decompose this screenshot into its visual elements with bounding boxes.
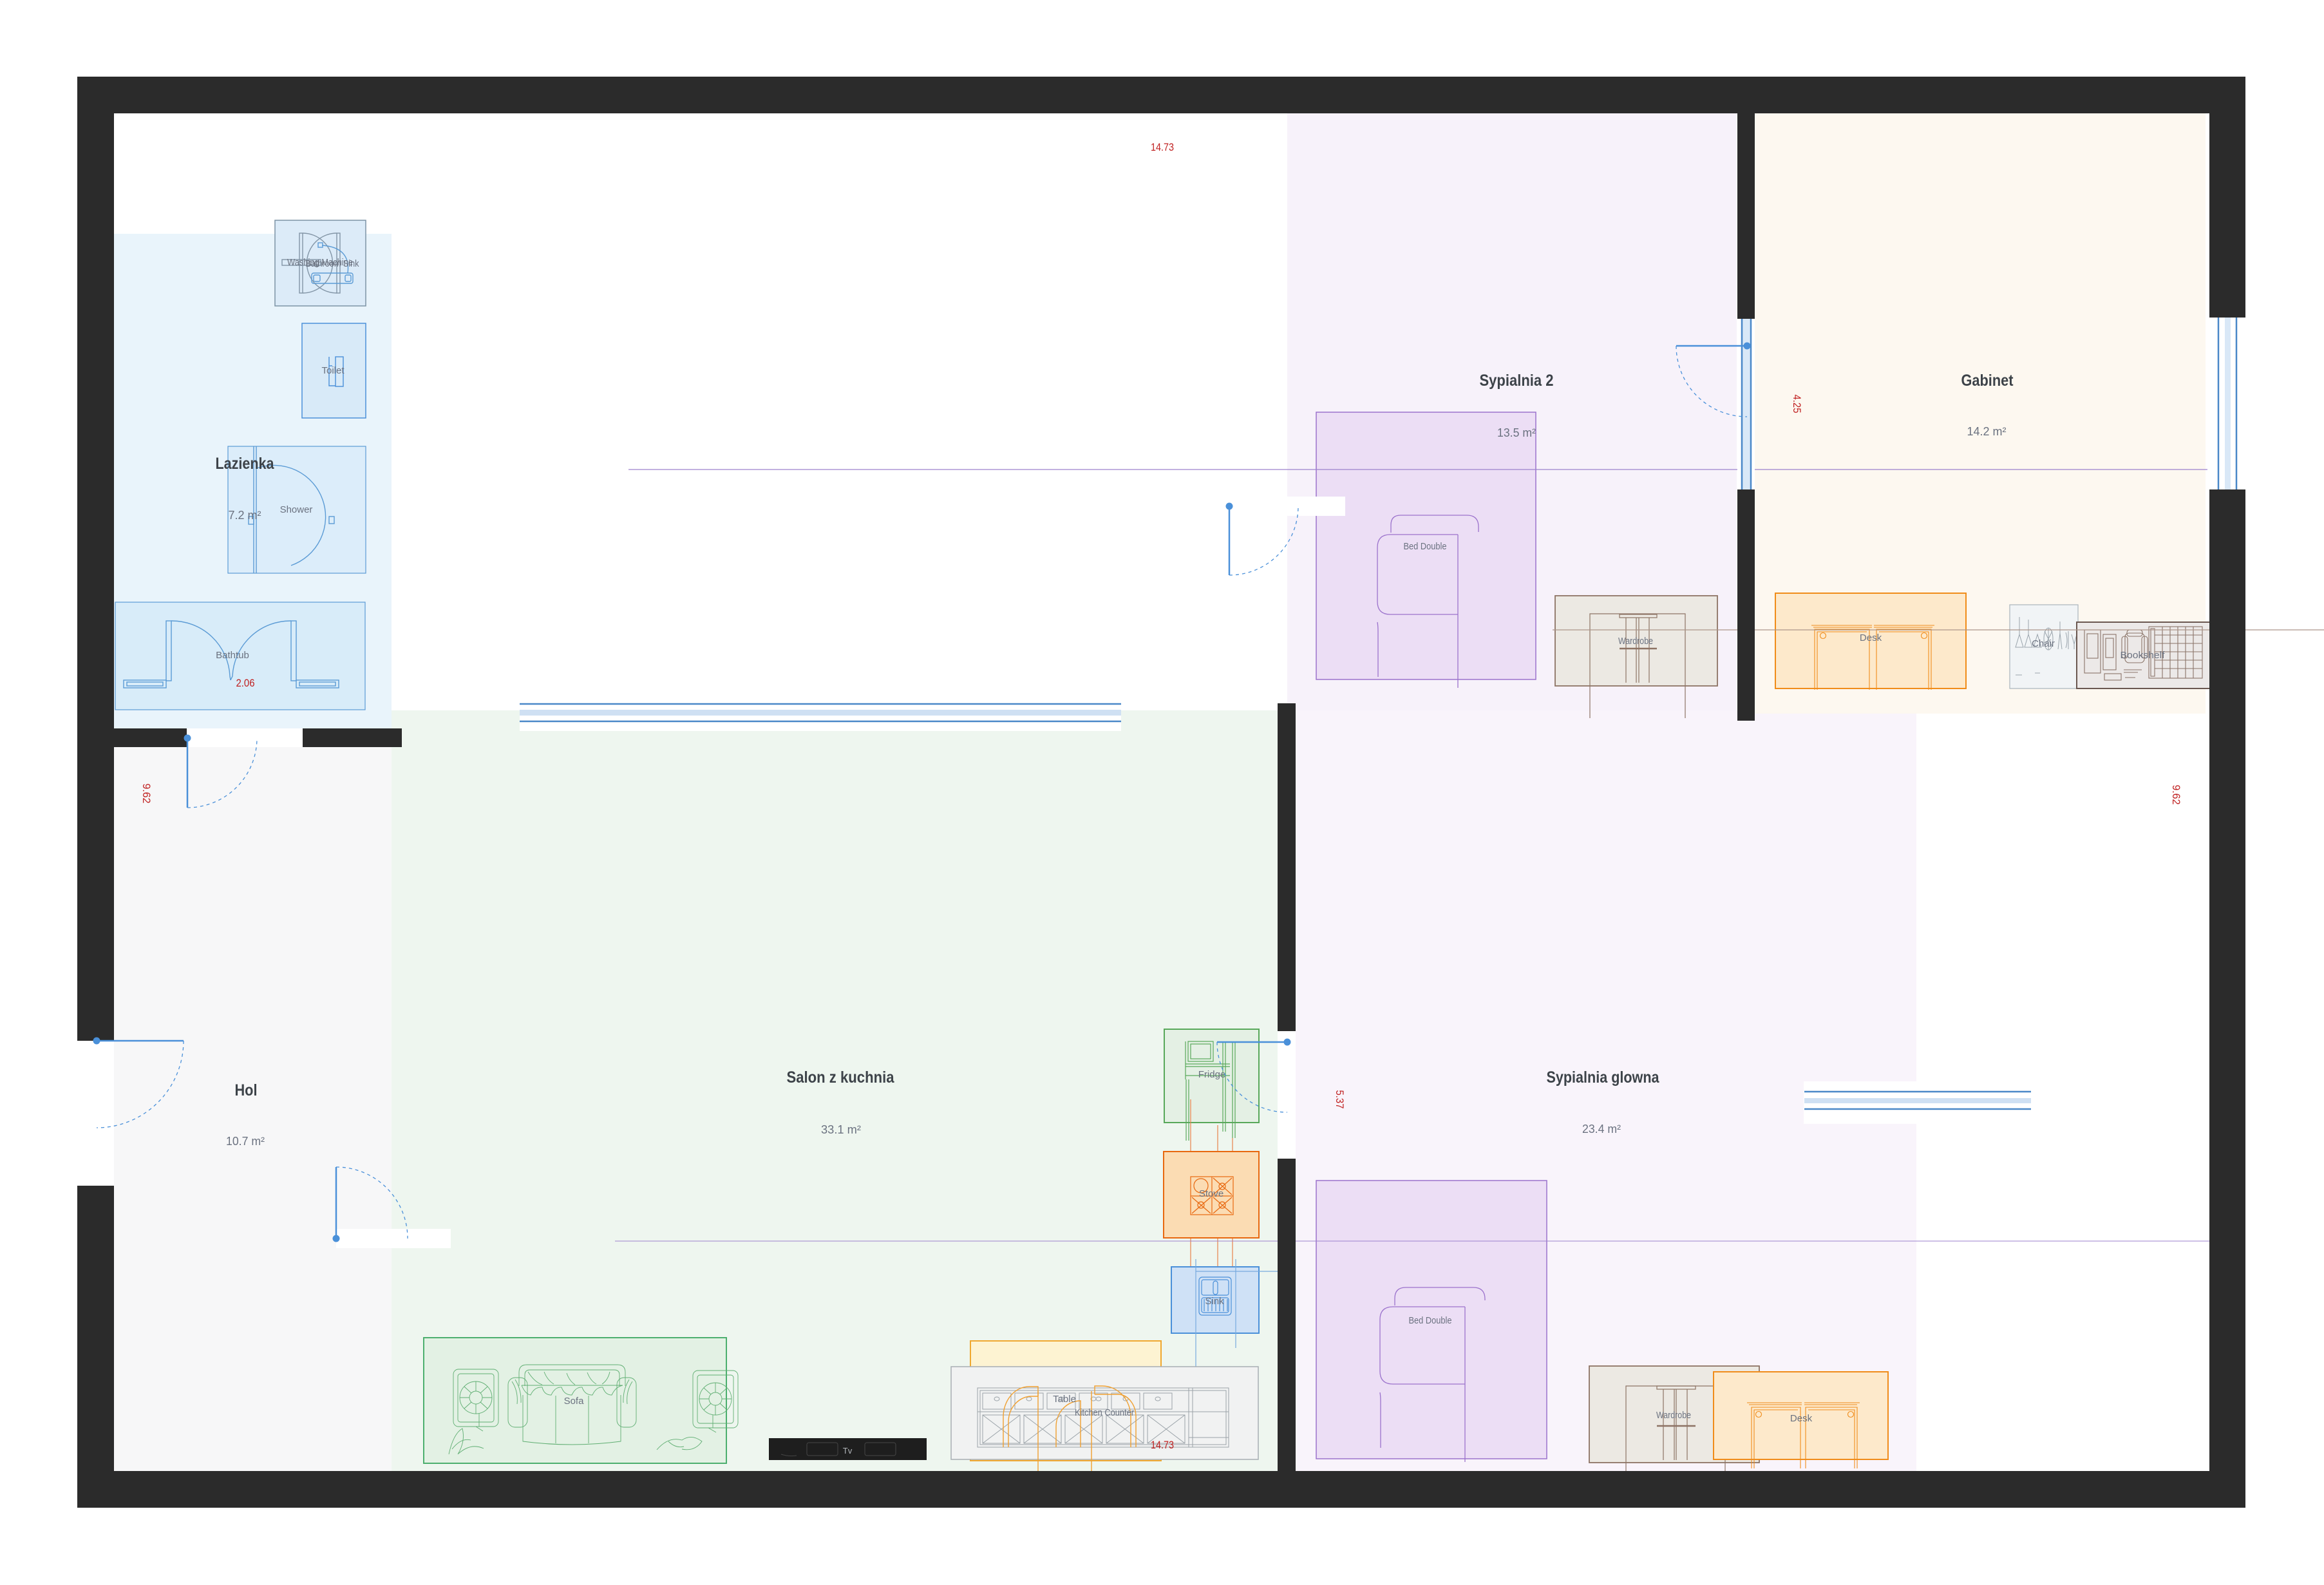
svg-text:14.2 m²: 14.2 m² [1967, 425, 2007, 438]
svg-text:33.1 m²: 33.1 m² [821, 1123, 861, 1136]
svg-text:Bathroom Sink: Bathroom Sink [306, 258, 359, 269]
svg-text:10.7 m²: 10.7 m² [226, 1135, 265, 1148]
svg-text:Table: Table [1053, 1394, 1076, 1405]
svg-text:Bed Double: Bed Double [1404, 541, 1447, 552]
svg-text:Desk: Desk [1860, 632, 1882, 643]
svg-text:Salon z kuchnia: Salon z kuchnia [787, 1068, 895, 1087]
svg-text:Hol: Hol [235, 1081, 258, 1099]
svg-text:Sofa: Sofa [564, 1396, 585, 1407]
svg-text:Shower: Shower [280, 504, 313, 515]
svg-text:Sink: Sink [1205, 1296, 1224, 1307]
svg-text:Toilet: Toilet [321, 365, 345, 376]
svg-text:Gabinet: Gabinet [1961, 372, 2014, 390]
svg-text:23.4 m²: 23.4 m² [1582, 1123, 1621, 1135]
svg-text:4.25: 4.25 [1791, 395, 1803, 413]
svg-text:Tv: Tv [843, 1446, 853, 1456]
svg-text:13.5 m²: 13.5 m² [1497, 426, 1536, 439]
svg-text:Bookshelf: Bookshelf [2121, 650, 2166, 661]
svg-text:Sypialnia 2: Sypialnia 2 [1480, 372, 1554, 390]
svg-text:Chair: Chair [2032, 638, 2055, 649]
svg-text:Wardrobe: Wardrobe [1656, 1410, 1691, 1421]
svg-text:Desk: Desk [1790, 1413, 1813, 1424]
svg-text:2.06: 2.06 [236, 677, 255, 689]
svg-text:Lazienka: Lazienka [216, 455, 275, 473]
svg-text:Kitchen Counter: Kitchen Counter [1075, 1407, 1134, 1418]
svg-text:Stove: Stove [1199, 1188, 1223, 1199]
svg-text:Wardrobe: Wardrobe [1618, 636, 1653, 647]
svg-text:Fridge: Fridge [1198, 1069, 1226, 1080]
svg-text:5.37: 5.37 [1334, 1090, 1346, 1109]
svg-text:Bed Double: Bed Double [1409, 1315, 1452, 1326]
svg-text:14.73: 14.73 [1151, 141, 1174, 153]
svg-text:9.62: 9.62 [140, 784, 153, 804]
svg-text:Sypialnia glowna: Sypialnia glowna [1547, 1068, 1660, 1087]
svg-text:14.73: 14.73 [1151, 1439, 1174, 1451]
svg-text:9.62: 9.62 [2170, 785, 2182, 805]
svg-text:Bathtub: Bathtub [216, 650, 249, 661]
svg-text:7.2 m²: 7.2 m² [229, 509, 261, 522]
